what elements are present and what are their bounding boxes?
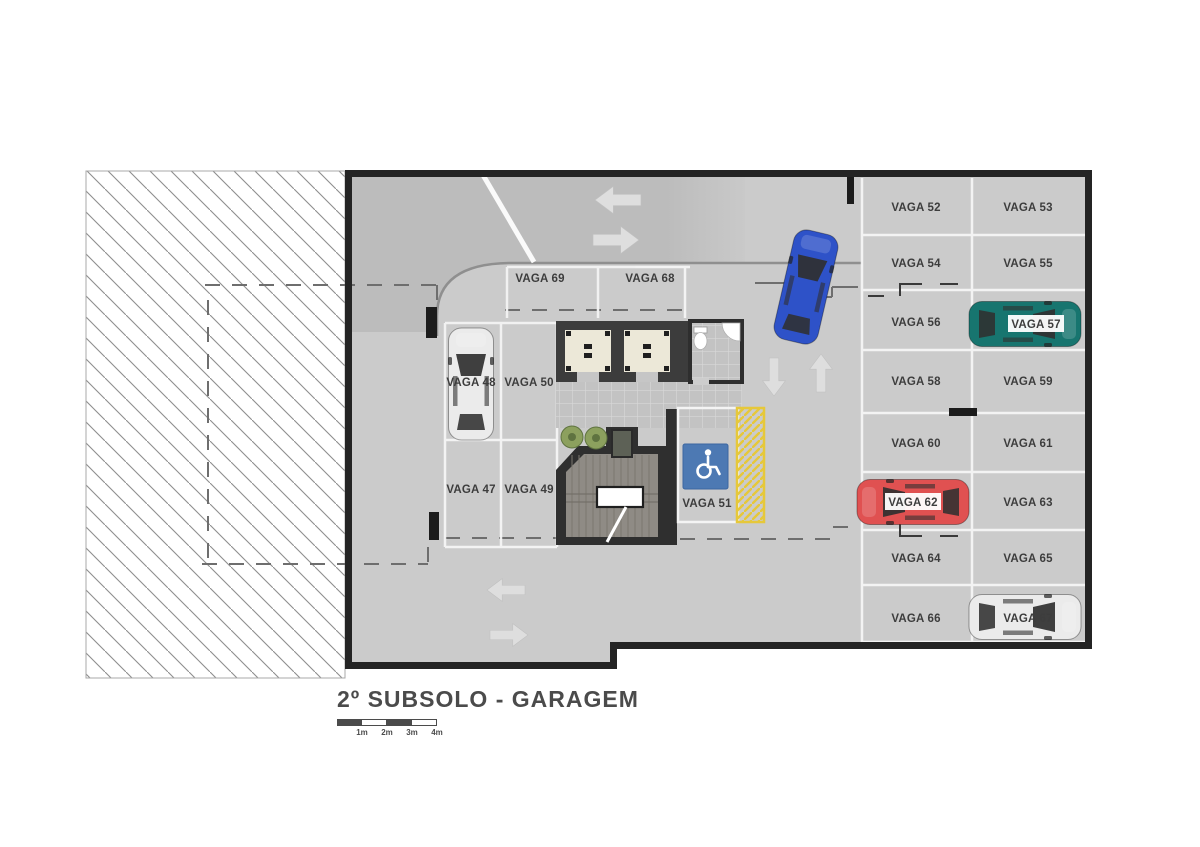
spot-label-vaga-62: VAGA 62 xyxy=(888,497,937,509)
page-title: 2º SUBSOLO - GARAGEM xyxy=(337,686,639,713)
scale-bar-segments xyxy=(337,719,447,726)
elevators-block xyxy=(556,321,690,382)
door-bar xyxy=(949,408,977,416)
scale-segment xyxy=(337,719,362,726)
spot-label-vaga-67: VAGA 67 xyxy=(1003,613,1052,625)
spot-label-vaga-53: VAGA 53 xyxy=(1003,202,1052,214)
bathroom xyxy=(690,321,742,385)
spot-label-vaga-61: VAGA 61 xyxy=(1003,438,1053,450)
spot-label-vaga-50: VAGA 50 xyxy=(504,377,553,389)
spot-label-vaga-57: VAGA 57 xyxy=(1011,319,1060,331)
wall-stub-upper xyxy=(426,307,437,338)
spot-label-vaga-56: VAGA 56 xyxy=(891,317,940,329)
spot-label-vaga-65: VAGA 65 xyxy=(1003,553,1053,565)
spot-label-vaga-69: VAGA 69 xyxy=(515,273,564,285)
scale-segment xyxy=(412,719,437,726)
lobby-tiled-floor xyxy=(556,380,742,428)
floor-plan-page: VAGA 52 VAGA 53 VAGA 54 VAGA 55 VAGA 56 … xyxy=(0,0,1200,847)
scale-segment xyxy=(362,719,387,726)
bathroom-door-opening xyxy=(693,378,709,385)
spot-label-vaga-59: VAGA 59 xyxy=(1003,376,1052,388)
wall-stub-right xyxy=(847,177,854,204)
spot-label-vaga-54: VAGA 54 xyxy=(891,258,941,270)
stair-sign xyxy=(597,487,643,507)
hatched-excavation-area xyxy=(86,171,345,678)
scale-label-3m: 3m xyxy=(406,728,418,737)
scale-segment xyxy=(387,719,412,726)
scale-label-4m: 4m xyxy=(431,728,443,737)
spot-label-vaga-47: VAGA 47 xyxy=(446,484,495,496)
spot-label-vaga-66: VAGA 66 xyxy=(891,613,940,625)
yellow-hatch-strip xyxy=(737,408,764,522)
spot-label-vaga-48: VAGA 48 xyxy=(446,377,496,389)
spot-label-vaga-64: VAGA 64 xyxy=(891,553,941,565)
spot-label-vaga-58: VAGA 58 xyxy=(891,376,941,388)
spot-label-vaga-55: VAGA 55 xyxy=(1003,258,1053,270)
wall-stub-lower xyxy=(429,512,439,540)
spot-label-vaga-51: VAGA 51 xyxy=(682,498,732,510)
toilet-icon xyxy=(694,327,707,350)
spot-label-vaga-60: VAGA 60 xyxy=(891,438,940,450)
scale-bar-labels: 1m 2m 3m 4m xyxy=(337,728,447,740)
spot-label-vaga-52: VAGA 52 xyxy=(891,202,940,214)
floor-plan-drawing: VAGA 52 VAGA 53 VAGA 54 VAGA 55 VAGA 56 … xyxy=(0,0,1200,847)
core-door xyxy=(612,430,632,457)
scale-bar: 1m 2m 3m 4m xyxy=(337,719,447,740)
spot-label-vaga-68: VAGA 68 xyxy=(625,273,675,285)
spot-label-vaga-49: VAGA 49 xyxy=(504,484,553,496)
spot-label-vaga-63: VAGA 63 xyxy=(1003,497,1052,509)
scale-label-1m: 1m xyxy=(356,728,368,737)
scale-label-2m: 2m xyxy=(381,728,393,737)
